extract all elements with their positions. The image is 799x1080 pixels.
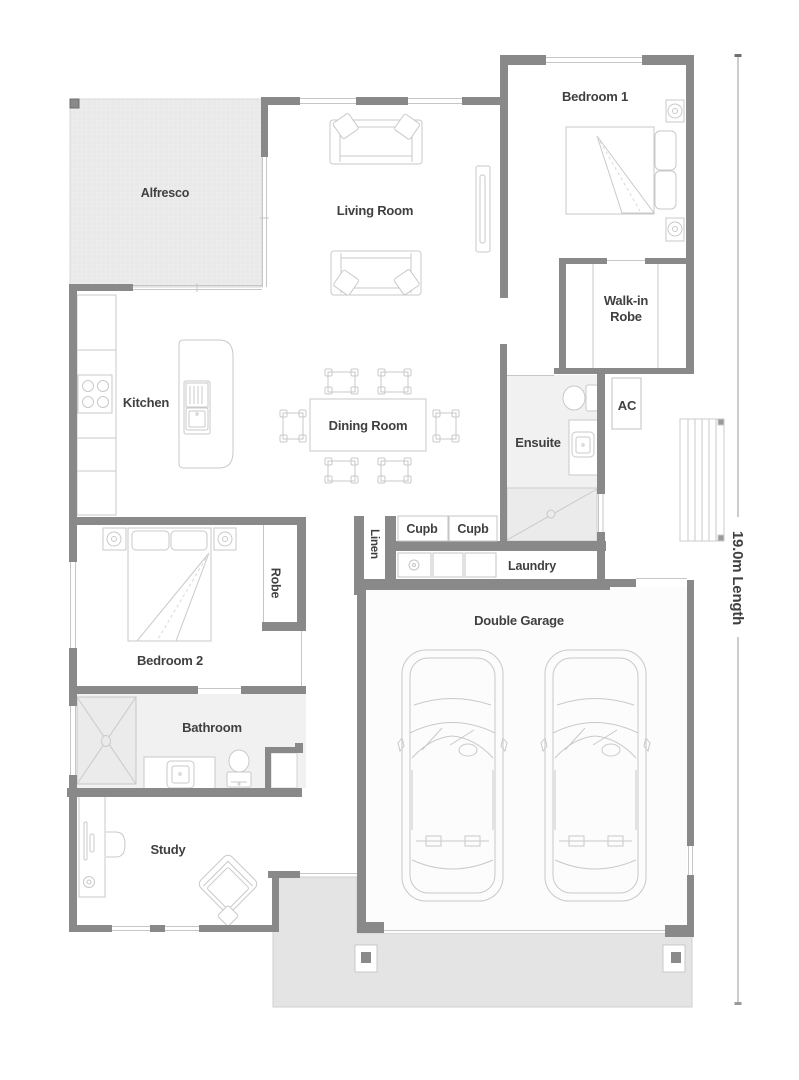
svg-text:Bathroom: Bathroom — [182, 720, 242, 735]
svg-text:Robe: Robe — [269, 568, 283, 599]
svg-text:Cupb: Cupb — [457, 522, 489, 536]
svg-text:Study: Study — [150, 842, 186, 857]
svg-text:Dining Room: Dining Room — [329, 418, 408, 433]
svg-text:Kitchen: Kitchen — [123, 395, 170, 410]
svg-text:Double Garage: Double Garage — [474, 613, 564, 628]
svg-text:Bedroom 1: Bedroom 1 — [562, 89, 628, 104]
svg-text:Linen: Linen — [368, 529, 380, 559]
svg-text:Robe: Robe — [610, 309, 642, 324]
svg-text:Laundry: Laundry — [508, 559, 556, 573]
svg-text:Living Room: Living Room — [337, 203, 414, 218]
svg-text:AC: AC — [618, 398, 637, 413]
svg-text:Alfresco: Alfresco — [141, 186, 190, 200]
svg-text:Walk-in: Walk-in — [604, 293, 649, 308]
svg-text:Ensuite: Ensuite — [515, 435, 561, 450]
svg-text:Bedroom 2: Bedroom 2 — [137, 653, 203, 668]
svg-text:Cupb: Cupb — [406, 522, 438, 536]
svg-text:19.0m Length: 19.0m Length — [729, 531, 746, 625]
